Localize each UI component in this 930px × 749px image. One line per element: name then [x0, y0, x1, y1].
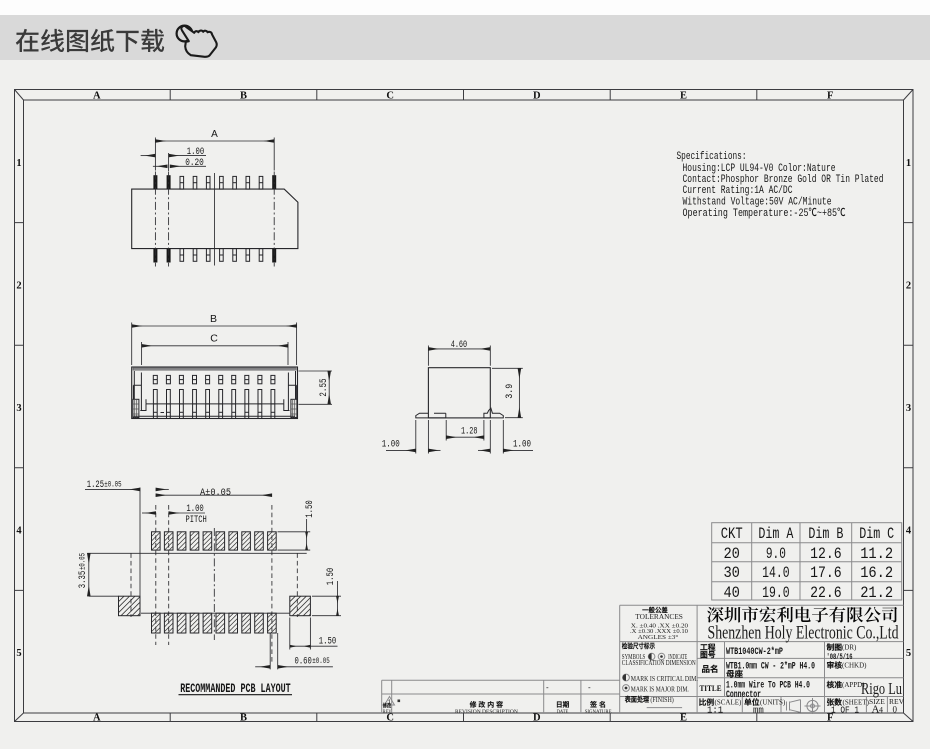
svg-text:1.50: 1.50 — [304, 500, 316, 518]
svg-text:B: B — [240, 91, 247, 102]
svg-text:11.2: 11.2 — [860, 545, 893, 563]
svg-text:Withstand Voltage:50V AC/Minut: Withstand Voltage:50V AC/Minute — [683, 197, 832, 209]
svg-text:Rigo Lu: Rigo Lu — [861, 679, 902, 698]
svg-text:21.2: 21.2 — [860, 584, 893, 602]
svg-text:30: 30 — [723, 564, 740, 582]
svg-text:mm: mm — [753, 705, 764, 715]
svg-text:Housing:LCP UL94-V0 Color:Natu: Housing:LCP UL94-V0 Color:Nature — [683, 163, 836, 175]
svg-text:SIGNATURE: SIGNATURE — [585, 709, 612, 715]
svg-text:1.25: 1.25 — [87, 479, 104, 491]
svg-text:核准: 核准 — [826, 679, 843, 690]
svg-text:0: 0 — [893, 705, 898, 715]
svg-text:0.60: 0.60 — [295, 655, 312, 667]
svg-text:22.6: 22.6 — [810, 584, 842, 602]
svg-text:(CHKD): (CHKD) — [842, 661, 867, 669]
svg-text:3: 3 — [906, 403, 911, 414]
svg-text:1.00: 1.00 — [382, 438, 400, 450]
svg-text:RECOMMANDED PCB LAYOUT: RECOMMANDED PCB LAYOUT — [180, 682, 291, 696]
svg-text:±0.05: ±0.05 — [104, 481, 121, 490]
svg-text:修改: 修改 — [382, 701, 391, 710]
svg-text:Contact:Phosphor Bronze Gold O: Contact:Phosphor Bronze Gold OR Tin Plat… — [683, 174, 884, 186]
svg-text:-: - — [546, 683, 549, 692]
svg-text:5: 5 — [16, 648, 21, 659]
svg-text:1.28: 1.28 — [461, 426, 478, 438]
svg-text:20: 20 — [723, 545, 740, 563]
svg-text:1 OF 1: 1 OF 1 — [831, 705, 859, 715]
svg-text:TOLERANCES: TOLERANCES — [635, 613, 683, 621]
svg-text:品名: 品名 — [702, 663, 719, 675]
svg-text:Dim C: Dim C — [859, 525, 894, 543]
svg-text:WTB1040CW-2*mP: WTB1040CW-2*mP — [726, 646, 783, 658]
svg-text:40: 40 — [723, 584, 740, 602]
svg-text:MARK IS MAJOR DIM.: MARK IS MAJOR DIM. — [631, 685, 689, 693]
svg-text:A±0.05: A±0.05 — [200, 487, 231, 499]
svg-text:3: 3 — [16, 403, 21, 414]
svg-text:E: E — [680, 713, 687, 724]
svg-text:14.0: 14.0 — [762, 564, 790, 582]
svg-text:ANGLES ±3°: ANGLES ±3° — [638, 634, 679, 641]
svg-text:E: E — [680, 91, 687, 102]
svg-text:1.50: 1.50 — [319, 636, 337, 648]
svg-text:A: A — [93, 713, 101, 724]
svg-text:REV.: REV. — [383, 709, 393, 715]
svg-text:16.2: 16.2 — [860, 564, 893, 582]
svg-text:1: 1 — [16, 158, 21, 169]
svg-text:5: 5 — [906, 648, 911, 659]
svg-text:Dim B: Dim B — [808, 525, 843, 543]
svg-text:12.6: 12.6 — [810, 545, 842, 563]
svg-text:19.0: 19.0 — [762, 584, 790, 602]
svg-text:4: 4 — [906, 526, 912, 537]
svg-text:Dim A: Dim A — [758, 525, 794, 543]
svg-text:PITCH: PITCH — [186, 514, 207, 526]
svg-text:(UNITS): (UNITS) — [760, 699, 786, 707]
svg-text:CKT: CKT — [721, 525, 743, 543]
svg-text:MARK IS CRITICAL DIM.: MARK IS CRITICAL DIM. — [631, 675, 698, 683]
svg-text:2.55: 2.55 — [318, 379, 330, 397]
svg-text:±0.05: ±0.05 — [79, 553, 88, 570]
svg-text:C: C — [210, 333, 218, 345]
svg-text:TITLE: TITLE — [700, 683, 722, 693]
svg-text:4.60: 4.60 — [451, 339, 468, 351]
svg-text:B: B — [210, 313, 217, 325]
svg-text:1: 1 — [906, 158, 911, 169]
svg-text:4: 4 — [16, 526, 22, 537]
svg-text:C: C — [386, 91, 394, 102]
svg-text:Specifications:: Specifications: — [677, 151, 747, 163]
svg-text:F: F — [827, 91, 833, 102]
svg-text:A: A — [93, 91, 101, 102]
svg-text:-: - — [588, 683, 591, 692]
svg-text:9.0: 9.0 — [766, 545, 786, 563]
svg-text:D: D — [533, 91, 541, 102]
svg-text:母座: 母座 — [726, 668, 744, 680]
svg-text:CLASSIFICATION DIMENSION: CLASSIFICATION DIMENSION — [622, 659, 696, 667]
svg-text:4: 4 — [879, 706, 883, 715]
svg-text:2: 2 — [906, 280, 911, 291]
svg-text:检验尺寸标示: 检验尺寸标示 — [622, 642, 655, 652]
svg-text:B: B — [240, 713, 247, 724]
svg-text:DATE: DATE — [557, 709, 569, 715]
svg-text:Current Rating:1A AC/DC: Current Rating:1A AC/DC — [683, 185, 793, 197]
svg-text:2: 2 — [16, 280, 21, 291]
svg-text:±0.05: ±0.05 — [312, 657, 330, 666]
svg-text:Operating Temperature:-25℃~+85: Operating Temperature:-25℃~+85℃ — [683, 207, 846, 220]
svg-text:Shenzhen Holy Electronic Co.,L: Shenzhen Holy Electronic Co.,Ltd — [708, 623, 899, 644]
svg-text:3.9: 3.9 — [504, 384, 516, 399]
svg-text:(DR): (DR) — [842, 644, 857, 652]
svg-text:1.00: 1.00 — [513, 438, 531, 450]
svg-text:D: D — [533, 713, 541, 724]
svg-text:表面处理: 表面处理 — [624, 694, 650, 705]
svg-text:A: A — [211, 129, 218, 140]
svg-text:制图: 制图 — [827, 642, 843, 653]
svg-text:0.20: 0.20 — [185, 157, 204, 169]
svg-text:17.6: 17.6 — [810, 564, 842, 582]
svg-text:1.50: 1.50 — [325, 568, 337, 586]
svg-text:(FINISH): (FINISH) — [650, 697, 673, 704]
svg-text:图号: 图号 — [700, 650, 716, 661]
svg-text:3.35: 3.35 — [77, 571, 89, 589]
svg-text:审核: 审核 — [827, 660, 843, 671]
svg-text:1:1: 1:1 — [707, 705, 723, 715]
svg-text:REVISION DESCRIPTION: REVISION DESCRIPTION — [455, 709, 518, 715]
